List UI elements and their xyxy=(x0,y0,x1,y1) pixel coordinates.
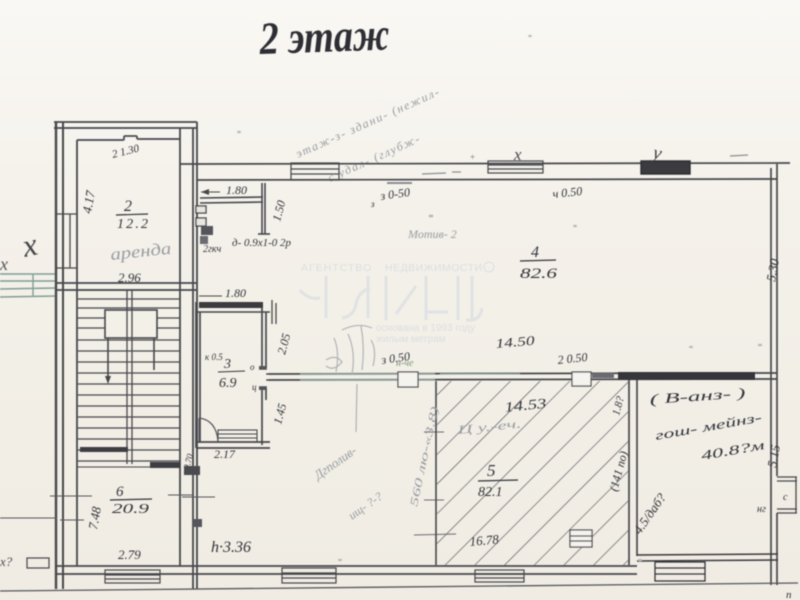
svg-text:1.80: 1.80 xyxy=(225,286,246,300)
svg-text:5: 5 xyxy=(487,461,496,480)
svg-text:АГЕНТСТВО: АГЕНТСТВО xyxy=(301,262,372,274)
svg-text:ц: ц xyxy=(252,382,257,392)
svg-text:п: п xyxy=(786,589,792,600)
svg-text:х: х xyxy=(513,145,522,164)
svg-text:с: с xyxy=(783,492,788,503)
svg-text:жилым метрам: жилым метрам xyxy=(376,334,446,345)
svg-text:+: + xyxy=(470,152,475,162)
svg-text:НЕДВИЖИМОСТИ: НЕДВИЖИМОСТИ xyxy=(385,262,483,274)
svg-text:4: 4 xyxy=(531,244,539,261)
svg-text:2.17: 2.17 xyxy=(214,447,236,461)
svg-text:2гкч: 2гкч xyxy=(203,244,221,255)
svg-text:2 этаж: 2 этаж xyxy=(258,8,391,64)
svg-text:основана в 1993 году: основана в 1993 году xyxy=(376,323,475,334)
svg-text:о: о xyxy=(250,362,255,372)
svg-text:16.78: 16.78 xyxy=(469,531,500,549)
svg-text:х?: х? xyxy=(0,554,13,569)
svg-text:х: х xyxy=(0,254,8,274)
svg-text:20.9: 20.9 xyxy=(112,502,149,517)
svg-text:д- 0.9х1-0 2р: д- 0.9х1-0 2р xyxy=(232,237,292,249)
svg-text:6.9: 6.9 xyxy=(219,376,237,391)
svg-text:2.96: 2.96 xyxy=(118,270,141,285)
svg-text:2.79: 2.79 xyxy=(118,547,141,562)
svg-text:нг: нг xyxy=(757,504,766,515)
svg-text:h·3.36: h·3.36 xyxy=(211,539,251,556)
svg-text:з: з xyxy=(370,199,375,209)
svg-text:6: 6 xyxy=(116,484,124,500)
svg-text:82.6: 82.6 xyxy=(520,266,558,282)
svg-text:Мотив- 2: Мотив- 2 xyxy=(407,227,457,241)
svg-text:3: 3 xyxy=(223,357,231,372)
svg-text:1.80: 1.80 xyxy=(226,183,247,197)
svg-text:к 0.5: к 0.5 xyxy=(205,352,223,362)
svg-text:2: 2 xyxy=(124,198,132,215)
svg-text:82.1: 82.1 xyxy=(478,485,503,500)
svg-text:12.2: 12.2 xyxy=(117,217,148,232)
